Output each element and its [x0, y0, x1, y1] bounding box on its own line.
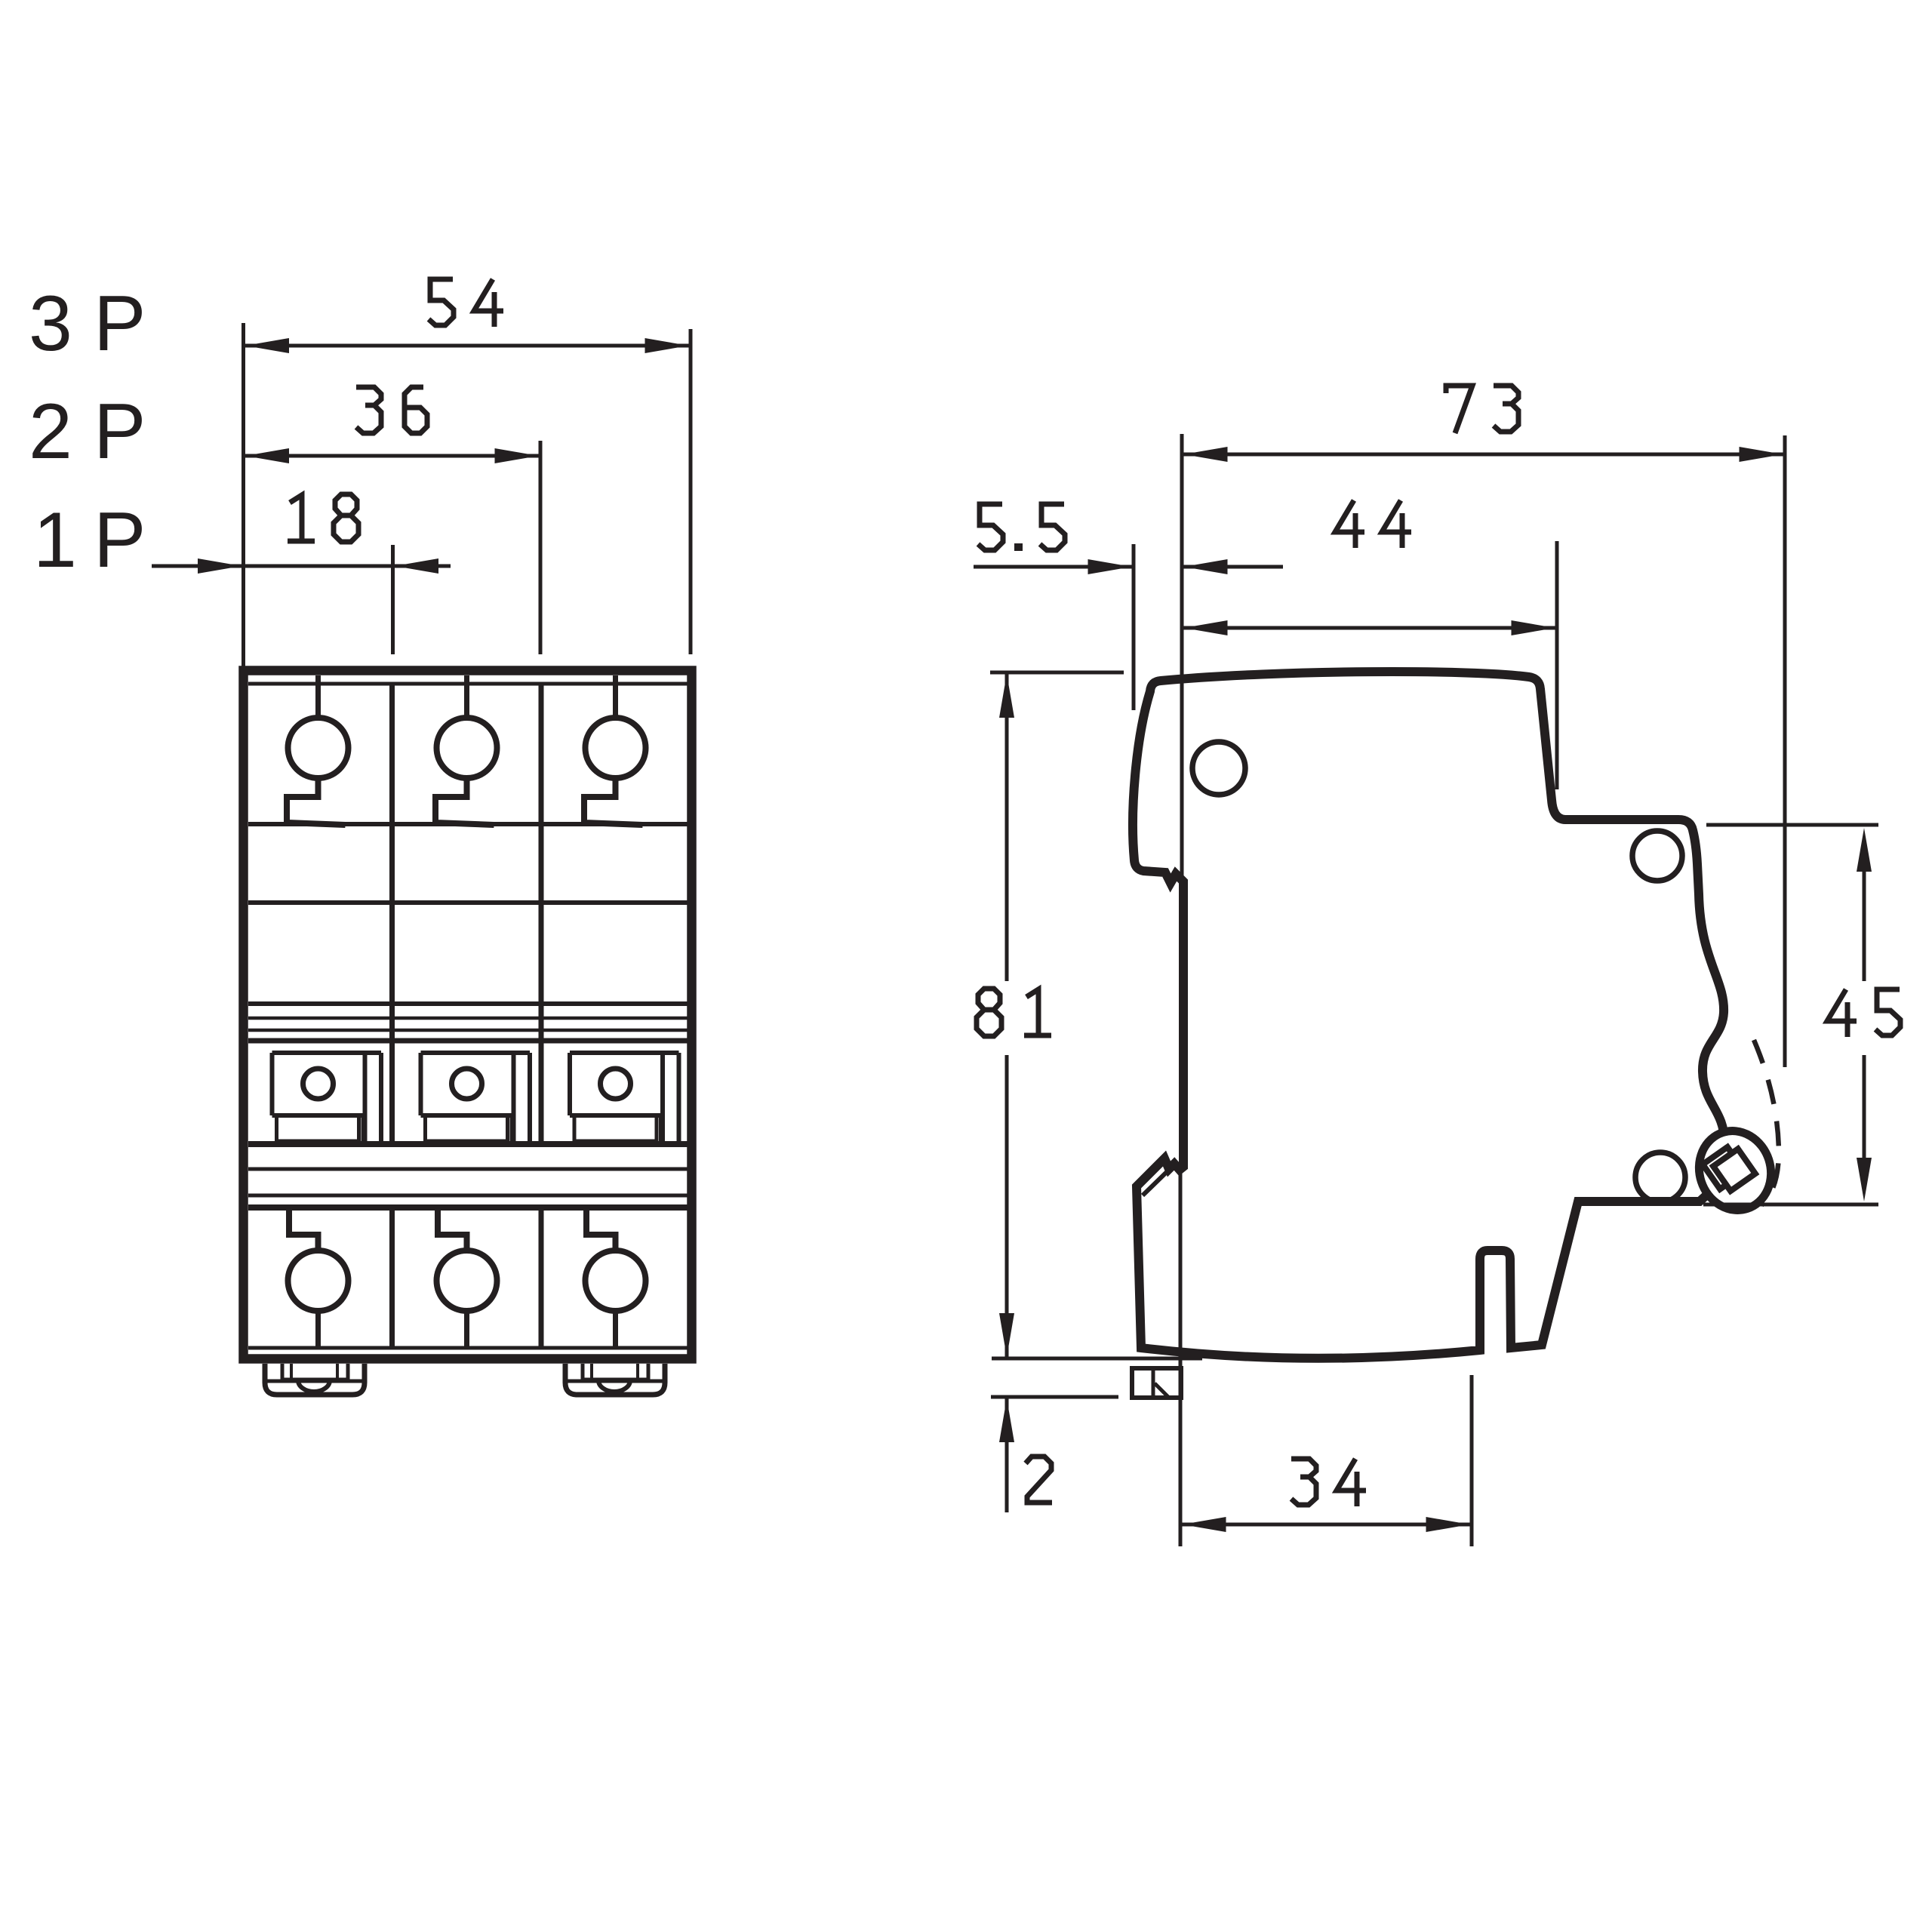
svg-text:P: P [94, 497, 146, 584]
svg-text:P: P [94, 280, 146, 368]
svg-text:1: 1 [33, 497, 77, 584]
svg-text:3: 3 [29, 280, 72, 368]
svg-text:2: 2 [29, 388, 72, 475]
svg-text:P: P [94, 388, 146, 475]
